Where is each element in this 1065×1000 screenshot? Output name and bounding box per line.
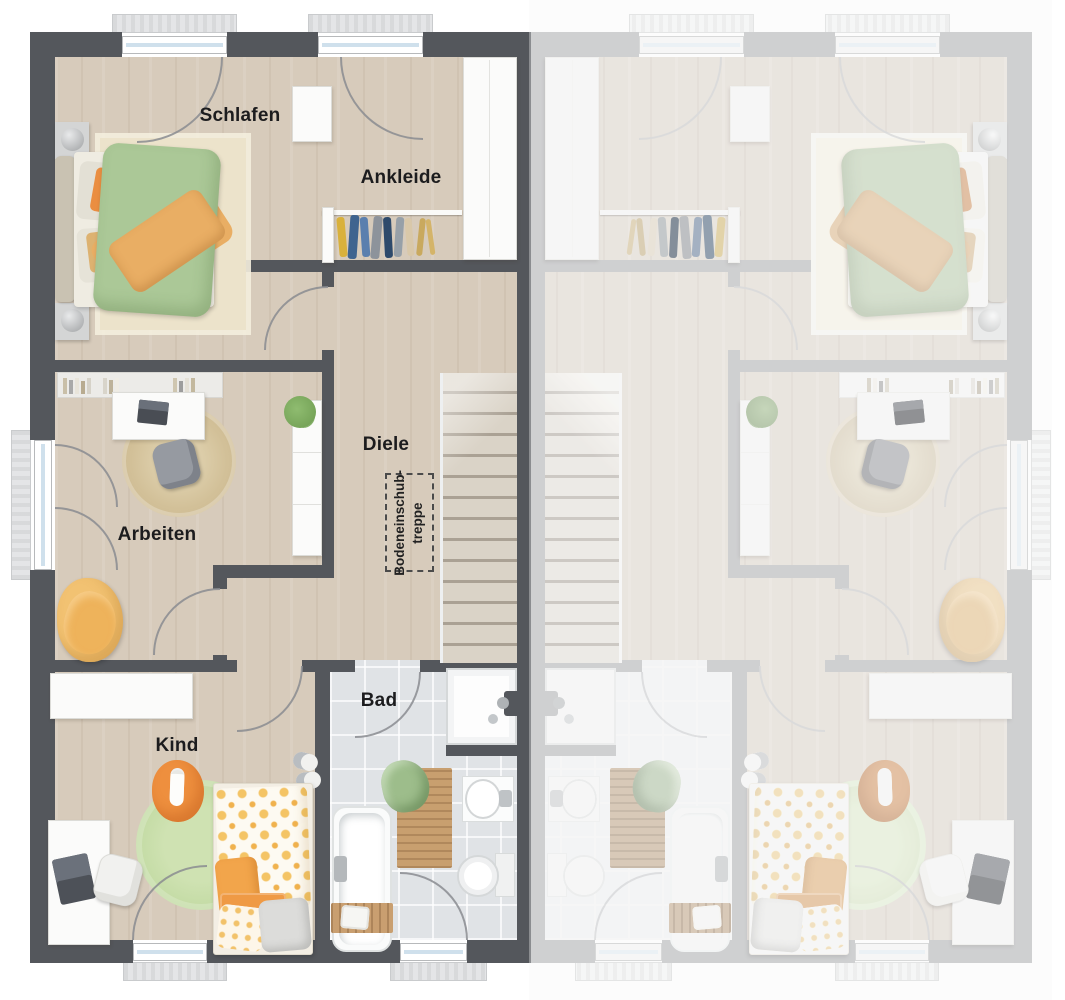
toilet-bowl xyxy=(563,855,605,897)
window-sill xyxy=(825,14,950,33)
laptop xyxy=(893,399,925,425)
floor-plan: Schlafen Ankleide Diele Arbeiten Kind Ba… xyxy=(0,0,1065,1000)
kids-pillow-gray xyxy=(750,897,804,953)
shower-head xyxy=(553,697,565,709)
window-sill xyxy=(575,962,672,981)
wall-arbeiten-diele xyxy=(728,372,740,578)
window xyxy=(855,943,929,961)
wall-stub xyxy=(728,272,740,287)
bed-headboard xyxy=(987,156,1007,302)
wall-kind-bad xyxy=(732,672,747,940)
books xyxy=(968,375,1002,397)
sink-faucet xyxy=(550,790,563,807)
window xyxy=(639,36,744,54)
wall-arbeiten-bottom xyxy=(728,565,849,578)
window xyxy=(835,36,940,54)
outer-wall-left xyxy=(1007,32,1032,440)
sideboard-divider xyxy=(741,452,769,453)
window-sill xyxy=(1031,430,1051,580)
wall-bad-top xyxy=(707,660,732,672)
outer-wall-top xyxy=(744,32,835,57)
lamp xyxy=(978,309,1001,332)
window xyxy=(595,943,662,961)
plant xyxy=(746,396,778,428)
staircase xyxy=(545,373,622,663)
unit-right: Schlafen Ankleide Diele Arbeiten Kind Ba… xyxy=(0,0,1062,1000)
window-sill xyxy=(835,962,939,981)
wall-corridor xyxy=(835,578,849,589)
wardrobe-divider xyxy=(572,60,573,257)
shower-drain xyxy=(564,714,574,724)
lamp xyxy=(978,128,1001,151)
window-sill xyxy=(629,14,754,33)
hanging-clothes xyxy=(604,215,724,261)
wall-kind-top-stub xyxy=(732,660,760,672)
wall-kind-top xyxy=(825,660,1032,672)
sink-basin xyxy=(561,779,597,819)
sideboard-divider xyxy=(741,504,769,505)
wardrobe xyxy=(730,86,770,142)
party-wall xyxy=(531,32,545,963)
clothes-rail-panel xyxy=(728,207,740,263)
window xyxy=(1010,440,1028,570)
kids-shelf xyxy=(869,673,1012,719)
wall-schlafen-arbeiten xyxy=(728,360,1007,372)
tub-towel xyxy=(692,905,722,930)
toy-bunny xyxy=(877,770,892,806)
outer-wall-top xyxy=(531,32,639,57)
wall-ankleide-diele xyxy=(545,260,824,272)
tub-faucet xyxy=(715,856,728,882)
